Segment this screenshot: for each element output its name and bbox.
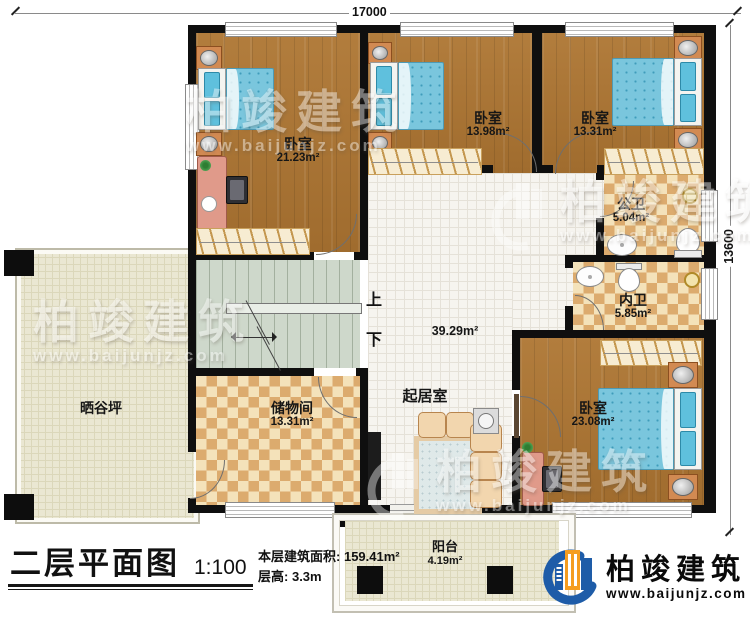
bedroom1-label: 卧室 21.23m² (246, 136, 350, 165)
stairs-up-label: 上 (366, 286, 382, 310)
plan-info: 本层建筑面积: 159.41m² 层高: 3.3m (258, 547, 400, 587)
dimension-top-label: 17000 (349, 5, 390, 19)
plant-icon (200, 160, 211, 171)
computer-monitor (226, 176, 248, 204)
balcony-column-right (487, 566, 513, 594)
room-area: 13.31m² (240, 416, 344, 429)
room-name: 卧室 (543, 110, 647, 126)
window-bottom-storage (225, 502, 335, 518)
bed-headboard (674, 58, 702, 126)
bed-headboard (370, 62, 398, 130)
sink (607, 234, 637, 256)
bed-bedroom2 (370, 62, 444, 130)
dimension-tick-top-left (11, 6, 20, 15)
nightstand (196, 46, 222, 70)
nightstand (674, 36, 702, 60)
sofa-cushion (418, 412, 446, 438)
bed-sheet-fold (661, 389, 673, 469)
window-right-publicbath (701, 190, 718, 242)
dimension-tick-top-right (733, 6, 742, 15)
bed-bedroom1 (198, 68, 274, 130)
bed-sheet-fold (399, 63, 411, 129)
height-label: 层高: (258, 569, 288, 584)
sink (576, 266, 604, 287)
room-name: 卧室 (246, 136, 350, 152)
wall-storage-right (360, 368, 368, 505)
brand-name: 柏竣建筑 (606, 555, 747, 585)
room-area: 13.31m² (543, 126, 647, 139)
plan-info-height: 层高: 3.3m (258, 567, 400, 587)
window-right-ensuite (701, 268, 718, 320)
area-label: 本层建筑面积: (258, 549, 340, 564)
wall-right-2 (704, 240, 716, 268)
bed-pillow (204, 101, 220, 127)
stairs-handrail (226, 303, 362, 314)
room-area: 5.85m² (600, 308, 666, 321)
bed-pillow (680, 392, 696, 428)
terrace-column-bottom (4, 494, 34, 520)
watermark-logo-icon (118, 91, 174, 153)
nightstand (368, 42, 392, 64)
room-area: 23.08m² (541, 416, 645, 429)
bed-sheet-fold (227, 69, 239, 129)
wardrobe-bedroom3 (604, 148, 704, 175)
bed-pillow (376, 98, 392, 127)
terrace-column-top (4, 250, 34, 276)
brand-block: 柏竣建筑 www.baijunjz.com (540, 546, 747, 610)
wall-right-1 (704, 25, 716, 190)
room-name: 阳台 (405, 540, 485, 555)
sofa-cushion (470, 480, 502, 508)
room-area: 39.29m² (408, 324, 502, 338)
stairs-arrow-line (236, 337, 276, 338)
plan-title: 二层平面图 (10, 548, 180, 579)
bedroom2-label: 卧室 13.98m² (436, 110, 540, 139)
terrace-label: 晒谷坪 (53, 400, 149, 416)
balcony-label: 阳台 4.19m² (405, 540, 485, 568)
room-name: 内卫 (600, 292, 666, 308)
window-top-bedroom3 (565, 22, 674, 37)
bed-pillow (376, 66, 392, 95)
bedroom4-label: 卧室 23.08m² (541, 400, 645, 429)
wardrobe-bedroom1 (196, 228, 310, 255)
wall-left-1 (188, 25, 196, 84)
wall-bedroom4-left-b (512, 436, 520, 505)
room-area: 13.98m² (436, 126, 540, 139)
room-area: 4.19m² (405, 555, 485, 568)
bedroom3-label: 卧室 13.31m² (543, 110, 647, 139)
window-top-bedroom1 (225, 22, 337, 37)
desk-bedroom4 (522, 452, 544, 506)
public-bath-label: 公卫 5.04m² (596, 196, 666, 225)
plan-scale: 1:100 (194, 556, 247, 579)
brand-website: www.baijunjz.com (606, 586, 747, 601)
wall-bedroom4-left-a (512, 330, 520, 390)
wall-publicbath-left-a (596, 173, 604, 180)
wall-right-3 (704, 318, 716, 513)
room-area: 21.23m² (246, 152, 350, 165)
bed-headboard (674, 388, 702, 470)
arrow-right-icon (272, 332, 282, 342)
hallway-upper-floor (512, 173, 604, 255)
wall-bedroom1-bottom-b (354, 252, 368, 260)
stairs-down-label: 下 (366, 326, 382, 350)
room-area: 5.04m² (596, 212, 666, 225)
room-name: 储物间 (240, 400, 344, 416)
computer-monitor (542, 466, 562, 492)
wall-storage-top-a (188, 368, 314, 376)
arrow-left-icon (226, 332, 236, 342)
living-area-label: 39.29m² (408, 324, 502, 338)
wall-bedroom1-right (360, 25, 368, 260)
bed-pillow (204, 72, 220, 98)
hallway-side-floor (512, 255, 573, 338)
door-leaf (514, 394, 519, 438)
room-name: 卧室 (541, 400, 645, 416)
room-name: 起居室 (381, 388, 469, 405)
area-value: 159.41m² (344, 549, 400, 564)
wall-left-2 (188, 168, 196, 452)
height-value: 3.3m (292, 569, 322, 584)
ensuite-bath-label: 内卫 5.85m² (600, 292, 666, 321)
shower-head-icon (682, 188, 698, 204)
bed-pillow (680, 431, 696, 467)
tv (368, 432, 381, 500)
nightstand (668, 362, 698, 388)
terrace-floor (15, 248, 200, 524)
bed-blanket (226, 68, 274, 130)
bed-sheet-fold (661, 59, 673, 125)
shower-head-icon (684, 272, 700, 288)
bed-pillow (680, 62, 696, 91)
bed-headboard (198, 68, 226, 130)
room-name: 晒谷坪 (53, 400, 149, 416)
dimension-right-line (730, 25, 731, 535)
plan-info-area: 本层建筑面积: 159.41m² (258, 547, 400, 567)
toilet-bowl (618, 268, 640, 292)
nightstand (668, 474, 698, 500)
sofa-cushion (470, 452, 502, 480)
nightstand (196, 132, 222, 156)
storage-label: 储物间 13.31m² (240, 400, 344, 429)
wall-bedroom4-top (512, 330, 716, 338)
desk-lamp (201, 196, 217, 212)
bed-pillow (680, 94, 696, 123)
wall-bedroom2-3-divider (532, 25, 542, 173)
toilet-tank (674, 250, 702, 258)
room-name: 公卫 (596, 196, 666, 212)
brand-text: 柏竣建筑 www.baijunjz.com (606, 555, 747, 600)
plant-icon (522, 442, 533, 453)
side-table (473, 408, 499, 434)
living-name-label: 起居室 (381, 388, 469, 405)
wall-ensuite-left-a (565, 255, 573, 268)
room-name: 卧室 (436, 110, 540, 126)
brand-logo-icon (540, 546, 598, 610)
window-top-bedroom2 (400, 22, 514, 37)
stairs-floor (196, 260, 360, 368)
plan-title-row: 二层平面图 1:100 (8, 548, 253, 587)
dimension-right-label: 13600 (722, 226, 736, 267)
dimension-tick-right-bottom (725, 527, 734, 536)
wardrobe-bedroom2 (368, 148, 482, 175)
floor-plan-canvas: 17000 13600 (0, 0, 750, 625)
title-block: 二层平面图 1:100 (8, 548, 253, 587)
